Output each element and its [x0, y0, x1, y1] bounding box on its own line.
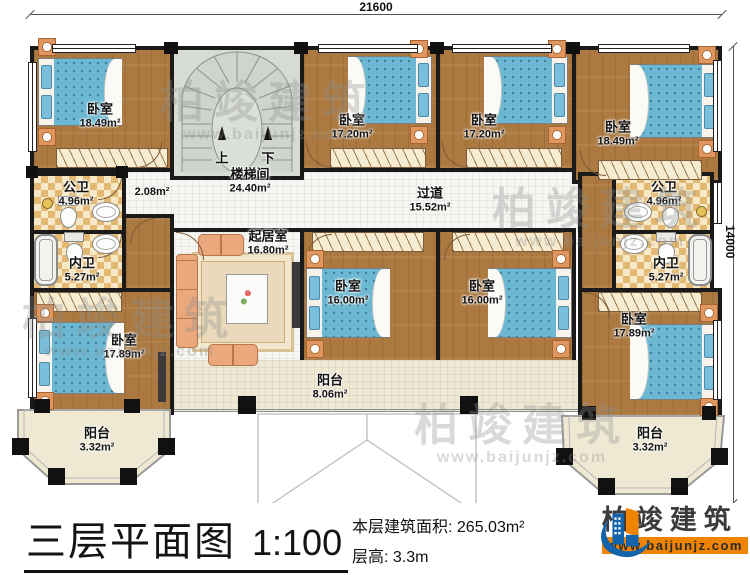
title-bar: 三层平面图 1:100 本层建筑面积: 265.03m² 层高: 3.3m — [0, 503, 750, 575]
room-label-bedroom-m2: 卧室17.20m² — [464, 114, 505, 141]
room-label-bath-private-left: 内卫5.27m² — [65, 257, 100, 284]
bed-mattress — [631, 65, 702, 137]
window — [598, 44, 690, 53]
pier — [124, 399, 140, 413]
balcony-column — [460, 396, 478, 414]
room-label-balcony-br: 阳台3.32m² — [633, 427, 668, 454]
pillow — [418, 63, 429, 87]
pillow — [418, 93, 429, 117]
drawing-info: 本层建筑面积: 265.03m² 层高: 3.3m — [352, 513, 525, 567]
bathtub — [688, 234, 712, 286]
tv — [158, 352, 166, 402]
stairs-icon — [174, 50, 300, 176]
nightstand — [36, 304, 54, 322]
hallway-area — [122, 172, 612, 232]
floor-drain — [42, 198, 53, 209]
pillow — [309, 306, 320, 330]
wardrobe — [598, 160, 702, 180]
nightstand — [552, 250, 570, 268]
pillow — [39, 362, 50, 386]
room-label-living: 起居室16.80m² — [248, 230, 289, 257]
dimension-line-top — [30, 14, 722, 15]
room-label-bedroom-tr: 卧室18.49m² — [598, 121, 639, 148]
dimension-right-value: 14000 — [723, 225, 737, 258]
pillow — [41, 65, 52, 89]
wardrobe — [598, 292, 702, 312]
room-label-bath-public-right: 公卫4.96m² — [647, 181, 682, 208]
pillow — [554, 93, 565, 117]
floor-plan-page: 上 下 — [0, 0, 750, 575]
nightstand — [306, 250, 324, 268]
dimension-line-right — [733, 46, 734, 504]
room-label-balcony-bl: 阳台3.32m² — [80, 427, 115, 454]
window — [713, 182, 722, 224]
pier — [566, 42, 580, 54]
bathtub — [34, 234, 58, 286]
room-label-bedroom-bl: 卧室17.89m² — [104, 334, 145, 361]
company-logo-icon — [596, 502, 654, 560]
corridor-small-area-label: 2.08m² — [135, 186, 170, 198]
armchair — [208, 344, 258, 366]
pier — [34, 399, 50, 413]
floor-area-line: 本层建筑面积: 265.03m² — [352, 513, 525, 537]
stair-down-label: 下 — [261, 148, 274, 167]
pillow — [558, 306, 569, 330]
nightstand — [306, 340, 324, 358]
pier — [430, 42, 444, 54]
room-label-bedroom-m4: 卧室16.00m² — [462, 280, 503, 307]
pillow — [558, 276, 569, 300]
pier — [702, 406, 716, 420]
window — [713, 60, 722, 152]
room-label-bedroom-br: 卧室17.89m² — [614, 313, 655, 340]
room-neck-right — [578, 172, 616, 292]
nightstand — [38, 128, 56, 146]
nightstand — [410, 126, 428, 144]
balcony-column — [238, 396, 256, 414]
tv — [292, 262, 300, 328]
window — [28, 62, 37, 152]
bed — [630, 64, 718, 138]
window — [452, 44, 552, 53]
armchair — [198, 234, 244, 256]
room-label-bedroom-m1: 卧室17.20m² — [332, 114, 373, 141]
window — [52, 44, 136, 53]
pillow — [41, 95, 52, 119]
pier — [116, 166, 128, 178]
stair-up-arrow — [218, 126, 226, 140]
pillow — [554, 63, 565, 87]
balcony-center — [174, 360, 578, 412]
bed-headboard — [556, 269, 571, 337]
room-label-balcony-center: 阳台8.06m² — [313, 374, 348, 401]
window — [713, 320, 722, 400]
nightstand — [552, 340, 570, 358]
room-label-bedroom-tl: 卧室18.49m² — [80, 103, 121, 130]
room-label-bedroom-m3: 卧室16.00m² — [328, 280, 369, 307]
sink — [92, 202, 120, 222]
pier — [294, 42, 308, 54]
sofa — [176, 254, 198, 348]
stair-up-label: 上 — [215, 148, 228, 167]
window — [28, 318, 37, 398]
floor-height-line: 层高: 3.3m — [352, 543, 525, 567]
bed-headboard — [39, 59, 54, 125]
pier — [26, 166, 38, 178]
window — [318, 44, 418, 53]
stair-down-arrow — [264, 126, 272, 140]
bed-headboard — [552, 57, 567, 123]
dimension-top-value: 21600 — [336, 0, 416, 14]
coffee-table — [226, 274, 268, 324]
pillow — [309, 276, 320, 300]
floor-drain — [696, 206, 707, 217]
sink — [620, 234, 648, 254]
nightstand — [548, 126, 566, 144]
pier — [582, 406, 596, 420]
pillow — [39, 330, 50, 354]
drawing-title-block: 三层平面图 1:100 — [24, 509, 348, 573]
bed-headboard — [307, 269, 322, 337]
room-label-hallway: 过道15.52m² — [410, 187, 451, 214]
drawing-scale: 1:100 — [252, 522, 342, 564]
bed-headboard — [37, 323, 52, 393]
wardrobe — [466, 148, 562, 168]
room-label-stairwell: 楼梯间24.40m² — [230, 168, 271, 195]
pier — [164, 42, 178, 54]
bed-headboard — [416, 57, 431, 123]
drawing-title: 三层平面图 — [26, 509, 236, 567]
company-logo: 柏竣建筑 www.baijunjz.com — [596, 507, 748, 554]
wardrobe — [330, 148, 426, 168]
bed-sheet — [372, 269, 390, 337]
sink — [92, 234, 120, 254]
room-label-bath-public-left: 公卫4.96m² — [59, 181, 94, 208]
room-label-bath-private-right: 内卫5.27m² — [649, 257, 684, 284]
